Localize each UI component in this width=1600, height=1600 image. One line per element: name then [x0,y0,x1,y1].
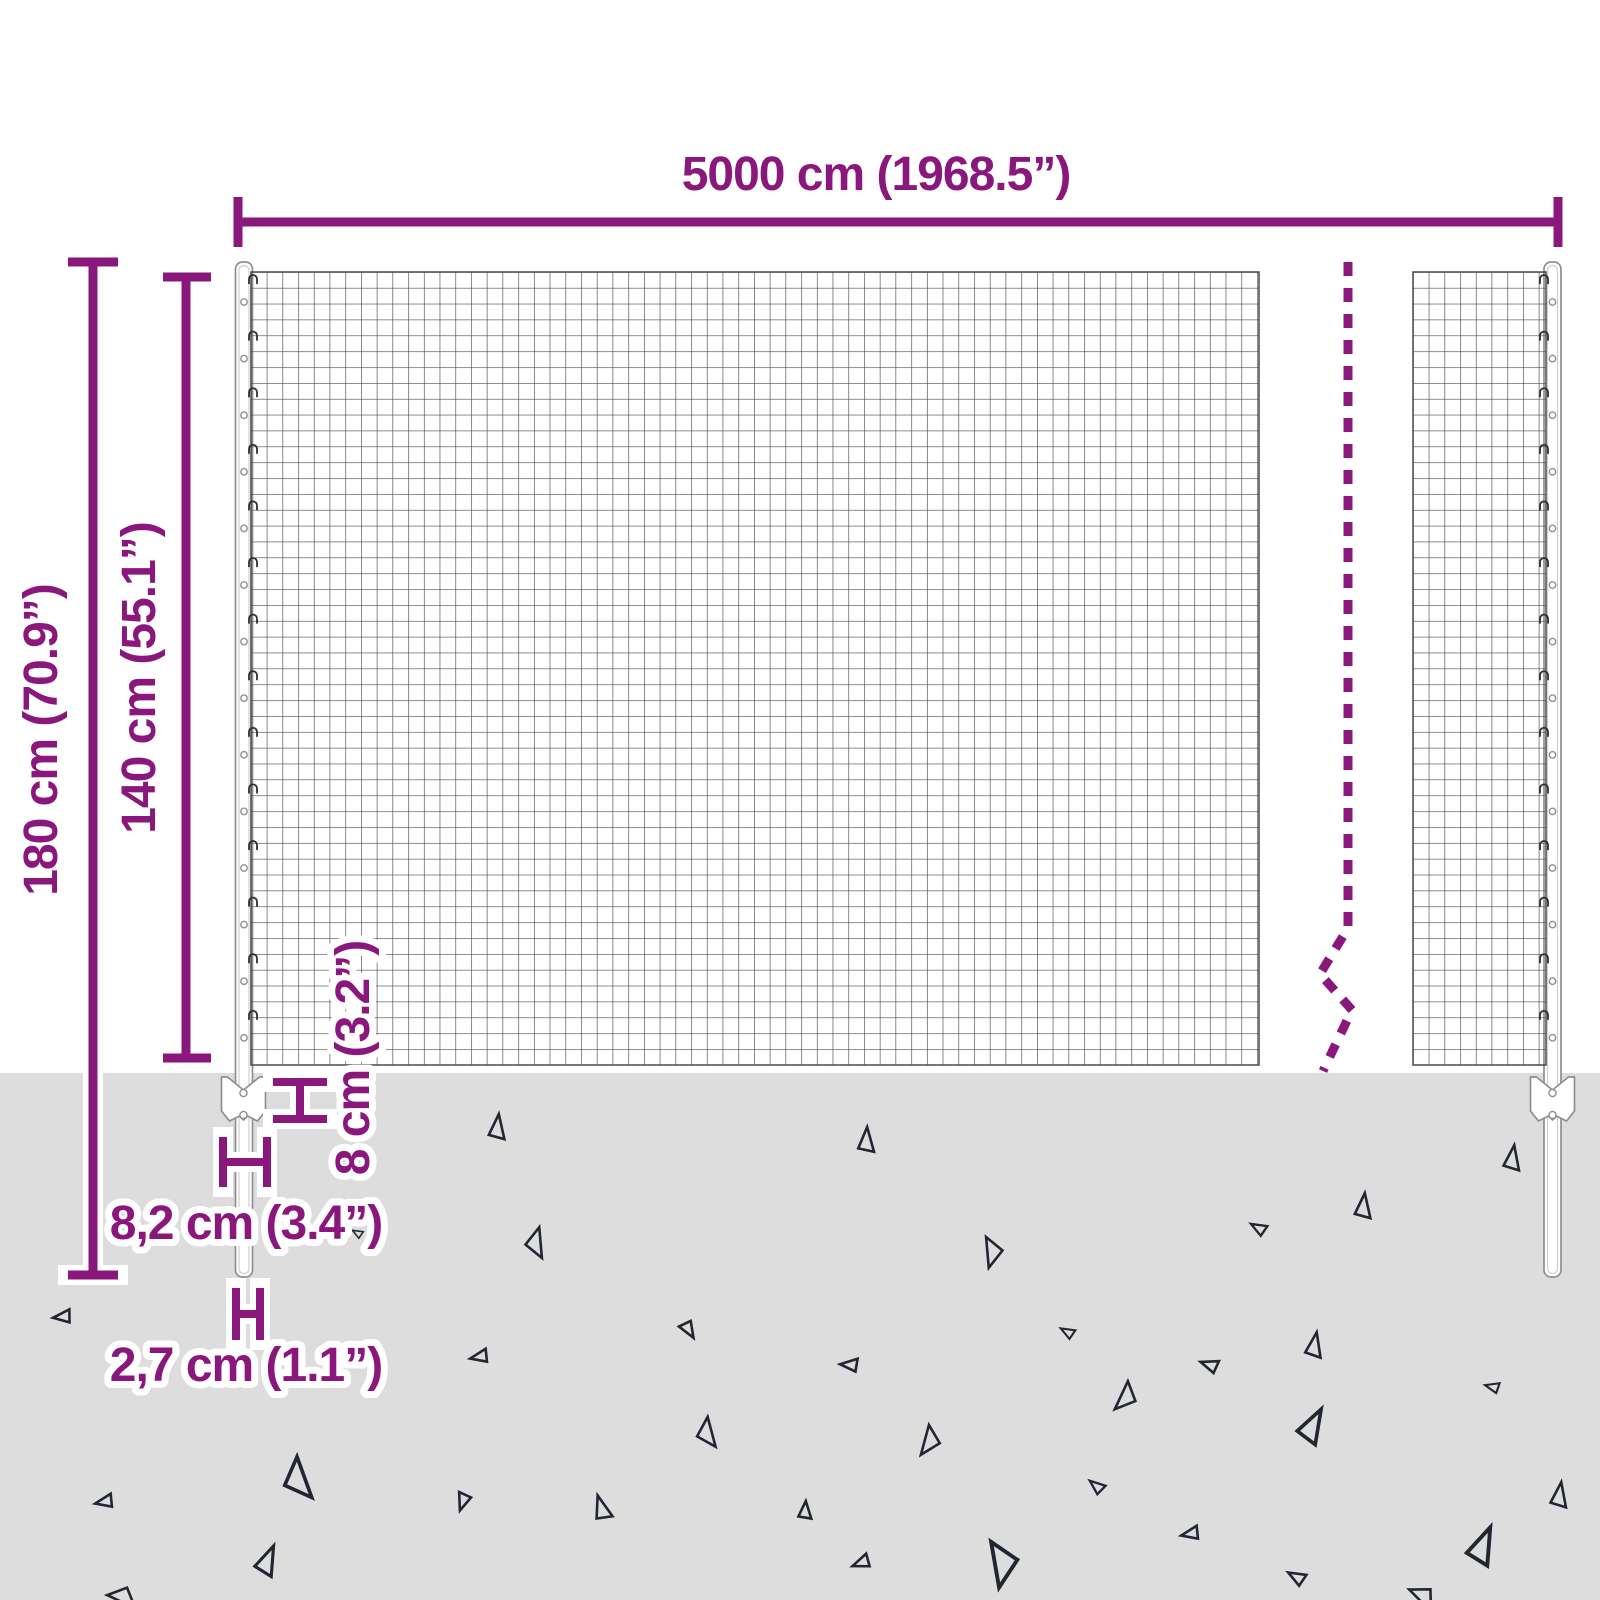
panel-height-dimension-label: 140 cm (55.1”) [113,522,166,834]
width-dimension-label: 5000 cm (1968.5”) [682,148,1071,201]
mesh-panel-main [251,272,1259,1065]
left-post-clips [236,272,264,1062]
diagram-canvas: 5000 cm (1968.5”) 180 cm (70.9”) 140 cm … [0,0,1600,1600]
post-diameter-dimension-label: 2,7 cm (1.1”) [110,1339,382,1392]
break-line [1320,262,1352,1071]
right-post-clips [1533,272,1561,1062]
fence-dimension-diagram: 5000 cm (1968.5”) 180 cm (70.9”) 140 cm … [0,0,1600,1600]
anchor-width-dimension-label: 8,2 cm (3.4”) [110,1197,382,1250]
total-height-dimension-label: 180 cm (70.9”) [15,584,68,896]
anchor-height-dimension-label: 8 cm (3.2”) [327,941,380,1175]
width-dimension [238,197,1558,247]
panel-height-dimension [163,277,211,1058]
mesh-panel-right [1413,272,1546,1065]
